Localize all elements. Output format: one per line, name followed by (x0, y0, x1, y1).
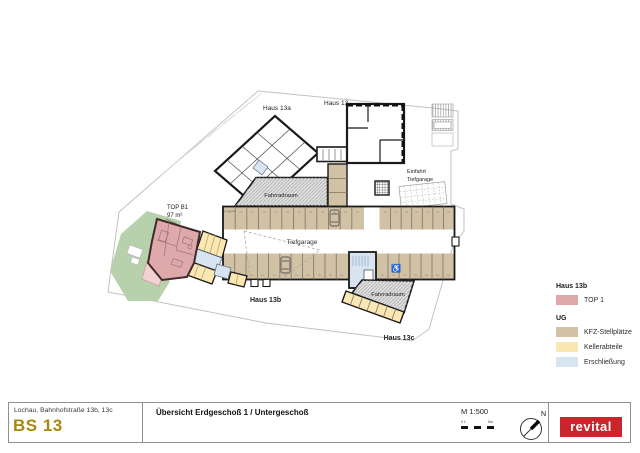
svg-text:N: N (541, 411, 546, 418)
drawing-sheet: TG.TG.TG.TG.TG.TG.TG.TG.TG.TG.TG.TG.TG.T… (0, 0, 640, 453)
neighbour-structures (432, 104, 453, 146)
label-einfahrt-1: Einfahrt (407, 169, 426, 175)
haus-13-building (347, 104, 404, 163)
label-haus-13c: Haus 13c (384, 335, 415, 342)
parking-space-label: TG. (340, 275, 344, 277)
legend-item-erschliessung: Erschließung (556, 357, 640, 367)
legend-swatch-kfz (556, 327, 578, 337)
parking-space-label: TG. (436, 212, 440, 214)
ramp-landing (375, 181, 389, 195)
legend-swatch-erschliessung (556, 357, 578, 367)
parking-space-label: TG. (384, 212, 388, 214)
project-code: BS 13 (13, 416, 63, 436)
label-einfahrt-2: Tiefgarage (407, 177, 433, 183)
project-cell: Lochau, Bahnhofstraße 13b, 13c BS 13 (9, 403, 143, 442)
parking-space-label: TG. (447, 212, 451, 214)
label-haus-13: Haus 13 (324, 100, 349, 107)
parking-space-label: TG. (392, 275, 396, 277)
label-fahrradraum-bottom: Fahrradraum (371, 292, 405, 298)
parking-space-label: TG. (436, 275, 440, 277)
parking-space-label: TG. (318, 275, 322, 277)
parking-space-label: TG. (295, 275, 299, 277)
legend-swatch-keller (556, 342, 578, 352)
project-address: Lochau, Bahnhofstraße 13b, 13c (14, 407, 113, 414)
parking-space-label: TG. (261, 275, 265, 277)
parking-space-label: TG. (321, 212, 325, 214)
parking-space-label: TG. (344, 212, 348, 214)
parking-space-label: TG. (309, 212, 313, 214)
parking-space-label: TG. (403, 275, 407, 277)
label-haus-13a: Haus 13a (263, 105, 291, 112)
label-haus-13b: Haus 13b (250, 297, 281, 304)
legend-item-top1: TOP 1 (556, 295, 640, 305)
scale-bar: 0 1 5m (461, 424, 507, 432)
parking-space-label: TG. (426, 212, 430, 214)
parking-space-label: TG. (274, 212, 278, 214)
parking-space-label: TG. (415, 212, 419, 214)
floor-plan: TG.TG.TG.TG.TG.TG.TG.TG.TG.TG.TG.TG.TG.T… (0, 0, 640, 398)
legend-item-keller: Kellerabteile (556, 342, 640, 352)
parking-space-label: TG. (263, 212, 267, 214)
legend-swatch-top1 (556, 295, 578, 305)
parking-space-label: TG. (329, 275, 333, 277)
parking-space-label: TG. (425, 275, 429, 277)
accessible-parking-icon: ♿ (391, 263, 401, 273)
parking-space-label: TG. (298, 212, 302, 214)
label-top-b1: TOP B1 (167, 205, 189, 211)
revital-logo: revital (560, 417, 622, 437)
sheet-title: Übersicht Erdgeschoß 1 / Untergeschoß (156, 408, 308, 417)
legend: Haus 13b TOP 1 UG KFZ-Stellplätze Keller… (556, 283, 640, 372)
parking-space-label: TG. (414, 275, 418, 277)
north-arrow-icon: N (511, 404, 551, 443)
parking-space-label: TG. (356, 212, 360, 214)
parking-space-label: TG. (286, 212, 290, 214)
parking-space-label: TG. (394, 212, 398, 214)
parking-space-label: TG. (306, 275, 310, 277)
legend-item-kfz: KFZ-Stellplätze (556, 327, 640, 337)
logo-cell: revital (548, 403, 632, 442)
legend-heading-ug: UG (556, 315, 640, 322)
parking-space-label: TG. (405, 212, 409, 214)
label-tiefgarage: Tiefgarage (287, 239, 318, 246)
parking-space-label: TG. (272, 275, 276, 277)
legend-heading-haus13b: Haus 13b (556, 283, 640, 290)
label-top-b1-area: 97 m² (167, 213, 182, 219)
label-motorrad: MOTORRAD (224, 210, 237, 213)
parking-space-label: TG. (239, 212, 243, 214)
parking-space-label: TG. (447, 275, 451, 277)
parking-space-label: TG. (250, 275, 254, 277)
label-fahrradraum-top: Fahrradraum (264, 193, 298, 199)
title-bar: Lochau, Bahnhofstraße 13b, 13c BS 13 Übe… (8, 402, 631, 443)
parking-space-label: TG. (381, 275, 385, 277)
parking-space-label: TG. (251, 212, 255, 214)
